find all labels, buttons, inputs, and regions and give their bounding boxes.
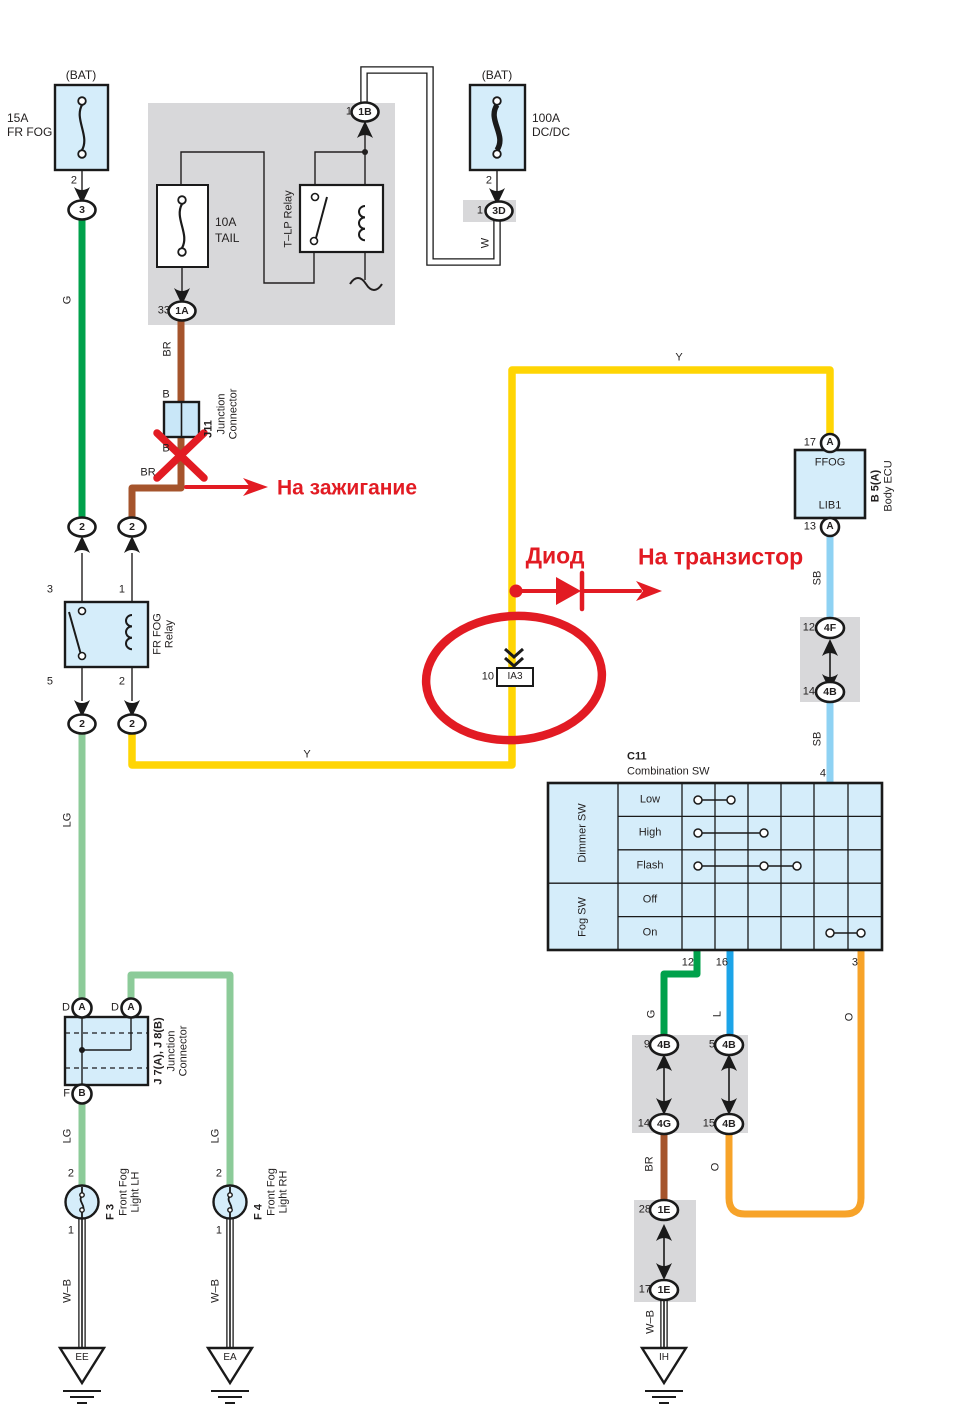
pin-3-label-c11: 3 xyxy=(852,958,858,969)
pin-1-label-1b: 1 xyxy=(346,107,352,118)
annotation-ignition: На зажигание xyxy=(277,478,417,499)
relay-pin-2: 2 xyxy=(119,677,125,688)
f3-pin-2: 2 xyxy=(68,1169,74,1180)
fuse-dcdc-bat-label: (BAT) xyxy=(482,69,512,81)
tlp-relay-symbol xyxy=(300,185,383,252)
body-ecu-ffog: FFOG xyxy=(815,458,846,469)
connector-1a-oval: 1A xyxy=(175,306,188,317)
connector-2-oval-b: 2 xyxy=(129,522,135,533)
wire-label-g-2: G xyxy=(647,1010,658,1019)
j11-name-1: Junction xyxy=(217,394,228,435)
relay-pin-1: 1 xyxy=(119,585,125,596)
junction-dot-tlp xyxy=(362,149,368,155)
fr-fog-relay-name-2: Relay xyxy=(165,620,176,648)
connector-1e-oval-2: 1E xyxy=(658,1285,671,1296)
pin-12-label-c11: 12 xyxy=(682,958,694,969)
combination-sw-name: Combination SW xyxy=(627,767,710,778)
fuse-dcdc-name: DC/DC xyxy=(532,126,570,138)
connector-4b-oval-2: 4B xyxy=(657,1040,670,1051)
wire-label-sb-1: SB xyxy=(813,571,824,586)
wire-label-y-2: Y xyxy=(675,353,682,364)
pin-17-label: 17 xyxy=(804,438,816,449)
connector-2-oval-d: 2 xyxy=(129,719,135,730)
annotation-diode: Диод xyxy=(526,545,585,568)
pin-13-label: 13 xyxy=(804,522,816,533)
connector-4g-oval: 4G xyxy=(657,1119,671,1130)
j7j8-symbol xyxy=(65,1017,148,1085)
f3-bulb xyxy=(66,1186,99,1219)
wire-label-g: G xyxy=(63,296,74,305)
j11-pin-b-top: B xyxy=(162,390,169,401)
j11-pin-b-bottom: B xyxy=(162,444,169,455)
pin-a-bottom: A xyxy=(826,522,833,532)
f4-name-1: Front Fog xyxy=(267,1168,278,1216)
f4-code: F 4 xyxy=(254,1204,265,1220)
relay-pin-5: 5 xyxy=(47,677,53,688)
fuse-fr-fog-rating: 15A xyxy=(7,112,28,124)
pin-9-label: 9 xyxy=(644,1040,650,1051)
wire-label-wb-1: W–B xyxy=(63,1279,74,1303)
diode-triangle xyxy=(556,577,581,605)
wire-label-sb-2: SB xyxy=(813,732,824,747)
j11-code: J11 xyxy=(204,420,215,438)
j7j8-name-2: Connector xyxy=(179,1026,190,1077)
j7j8-name-1: Junction xyxy=(167,1031,178,1072)
j11-symbol xyxy=(164,402,199,437)
wire-label-br-2: BR xyxy=(140,468,155,479)
connector-3-oval: 3 xyxy=(79,205,85,216)
f4-pin-2: 2 xyxy=(216,1169,222,1180)
pin-16-label: 16 xyxy=(716,958,728,969)
f4-pin-1: 1 xyxy=(216,1226,222,1237)
wire-label-lg-3: LG xyxy=(211,1129,222,1144)
pin-17-label-1e: 17 xyxy=(639,1285,651,1296)
fr-fog-relay-name-1: FR FOG xyxy=(153,613,164,655)
f3-name-1: Front Fog xyxy=(119,1168,130,1216)
pin-10-label: 10 xyxy=(482,672,494,683)
combination-sw-table xyxy=(548,783,882,950)
wires-wb xyxy=(82,1219,664,1349)
wire-label-o-1: O xyxy=(845,1013,856,1022)
pin-15-label: 15 xyxy=(703,1119,715,1130)
connector-4b-oval-3: 4B xyxy=(722,1040,735,1051)
wire-label-br-1: BR xyxy=(163,341,174,356)
connector-4f-oval: 4F xyxy=(824,623,836,634)
wire-label-wb-3: W–B xyxy=(646,1310,657,1334)
wire-label-br-3: BR xyxy=(645,1156,656,1171)
body-ecu-lib1: LIB1 xyxy=(819,501,842,512)
body-ecu-name: Body ECU xyxy=(884,460,895,511)
row-high: High xyxy=(639,828,662,839)
wire-label-l: L xyxy=(713,1011,724,1017)
annotation-transistor: На транзистор xyxy=(638,546,803,569)
f3-pin-1: 1 xyxy=(68,1226,74,1237)
connector-3d-oval: 3D xyxy=(492,206,505,217)
f4-name-2: Light RH xyxy=(279,1171,290,1214)
fuse-dcdc-symbol xyxy=(470,85,525,170)
pin-5-label: 5 xyxy=(709,1040,715,1051)
fuse-tail-symbol xyxy=(157,185,208,267)
j11-name-2: Connector xyxy=(229,389,240,440)
row-off: Off xyxy=(643,895,657,906)
f3-code: F 3 xyxy=(106,1204,117,1220)
row-on: On xyxy=(643,928,658,939)
pin-28-label: 28 xyxy=(639,1205,651,1216)
fuse-fr-fog-symbol xyxy=(55,85,108,170)
pin-a-top: A xyxy=(826,438,833,448)
connector-ia3-label: IA3 xyxy=(507,672,522,682)
j7-pin-b: B xyxy=(78,1089,85,1099)
tlp-relay-name: T–LP Relay xyxy=(284,190,295,247)
wire-label-lg-2: LG xyxy=(63,1129,74,1144)
pin-4-label: 4 xyxy=(820,769,826,780)
body-ecu-code: B 5(A) xyxy=(871,470,882,502)
connector-4b-oval-1: 4B xyxy=(823,687,836,698)
connector-4b-oval-4: 4B xyxy=(722,1119,735,1130)
wire-label-wb-2: W–B xyxy=(211,1279,222,1303)
f4-bulb xyxy=(214,1186,247,1219)
wire-label-o-2: O xyxy=(711,1163,722,1172)
j7-pin-d-2: D xyxy=(111,1003,119,1014)
wire-label-y-1: Y xyxy=(303,750,310,761)
fuse-dcdc-rating: 100A xyxy=(532,112,560,124)
pin-33-label: 33 xyxy=(158,306,170,317)
connector-2-oval-a: 2 xyxy=(79,522,85,533)
j7-pin-a-2: A xyxy=(127,1003,134,1013)
wire-label-lg-1: LG xyxy=(63,813,74,828)
pin-1-label-3d: 1 xyxy=(477,206,483,217)
connector-1e-oval-1: 1E xyxy=(658,1205,671,1216)
pin-2-label: 2 xyxy=(71,176,77,187)
j7-pin-f: F xyxy=(63,1089,70,1100)
fr-fog-relay-symbol xyxy=(65,602,148,667)
pin-12-label-4f: 12 xyxy=(803,623,815,634)
connector-1b-oval: 1B xyxy=(358,107,371,118)
pin-2-label-dcdc: 2 xyxy=(486,176,492,187)
fuse-fr-fog-name: FR FOG xyxy=(7,126,52,138)
combination-sw-code: C11 xyxy=(627,752,647,763)
wire-orange xyxy=(729,950,861,1214)
j7j8-code: J 7(A), J 8(B) xyxy=(154,1017,165,1084)
pin-14-label-4b: 14 xyxy=(803,687,815,698)
fuse-tail-name: TAIL xyxy=(215,232,239,244)
j7-pin-a-1: A xyxy=(78,1003,85,1013)
ground-ih-label: IH xyxy=(659,1353,669,1363)
relay-pin-3: 3 xyxy=(47,585,53,596)
f3-name-2: Light LH xyxy=(131,1172,142,1213)
dimmer-sw-group: Dimmer SW xyxy=(578,803,589,862)
fog-sw-group: Fog SW xyxy=(578,897,589,937)
wire-label-w: W xyxy=(481,238,492,248)
pin-14-label-4g: 14 xyxy=(638,1119,650,1130)
connector-2-oval-c: 2 xyxy=(79,719,85,730)
ground-ee-label: EE xyxy=(75,1353,88,1363)
row-low: Low xyxy=(640,795,660,806)
ground-ea-label: EA xyxy=(223,1353,236,1363)
wiring-diagram: (BAT) 15A FR FOG 2 3 G 10A TAIL 33 1A T–… xyxy=(0,0,960,1418)
j7-pin-d-1: D xyxy=(62,1003,70,1014)
row-flash: Flash xyxy=(637,861,664,872)
fuse-tail-rating: 10A xyxy=(215,216,236,228)
fuse-fr-fog-bat-label: (BAT) xyxy=(66,69,96,81)
